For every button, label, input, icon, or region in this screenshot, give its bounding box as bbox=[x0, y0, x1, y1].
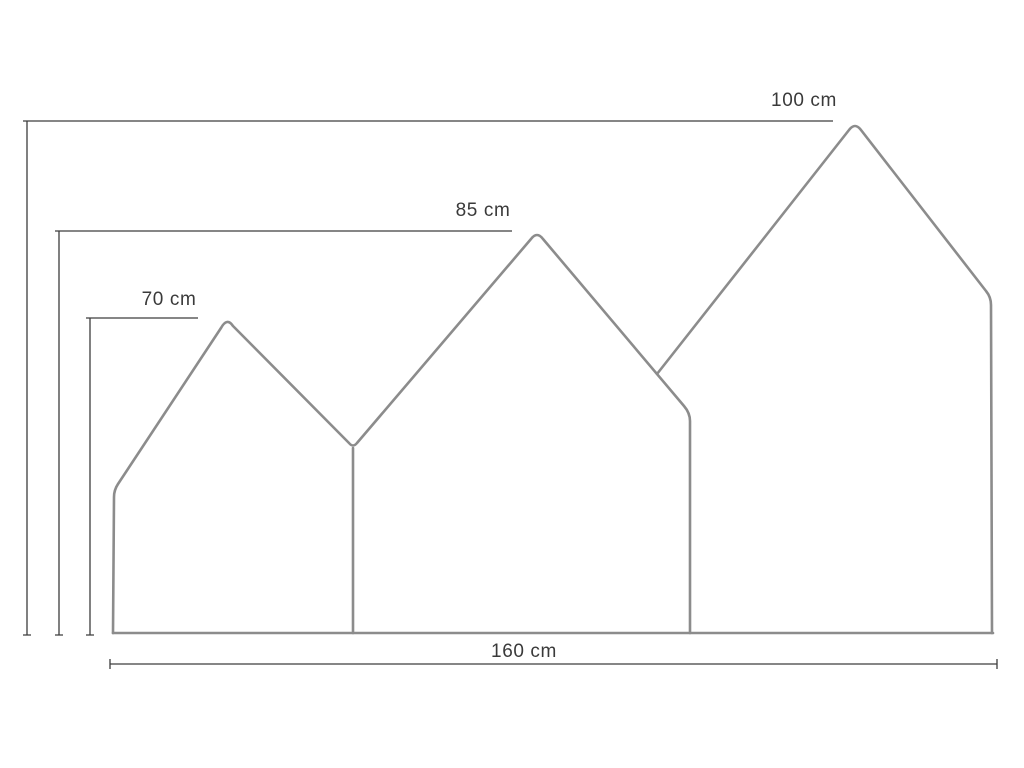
house-large-outline bbox=[657, 126, 992, 633]
label-width-total: 160 cm bbox=[491, 641, 557, 662]
dimension-line-height-medium bbox=[55, 231, 512, 635]
house-panel-dimension-drawing: 100 cm 85 cm 70 cm 160 cm bbox=[0, 0, 1024, 768]
label-height-medium: 85 cm bbox=[456, 200, 511, 221]
dimension-line-height-small bbox=[86, 318, 198, 635]
panel-outline-group bbox=[113, 126, 993, 633]
diagram-canvas: 100 cm 85 cm 70 cm 160 cm bbox=[0, 0, 1024, 768]
house-small-and-medium-outline bbox=[113, 235, 690, 633]
dimension-line-height-large bbox=[23, 121, 833, 635]
dimension-labels-group: 100 cm 85 cm 70 cm 160 cm bbox=[142, 90, 837, 662]
label-height-large: 100 cm bbox=[771, 90, 837, 111]
label-height-small: 70 cm bbox=[142, 289, 197, 310]
